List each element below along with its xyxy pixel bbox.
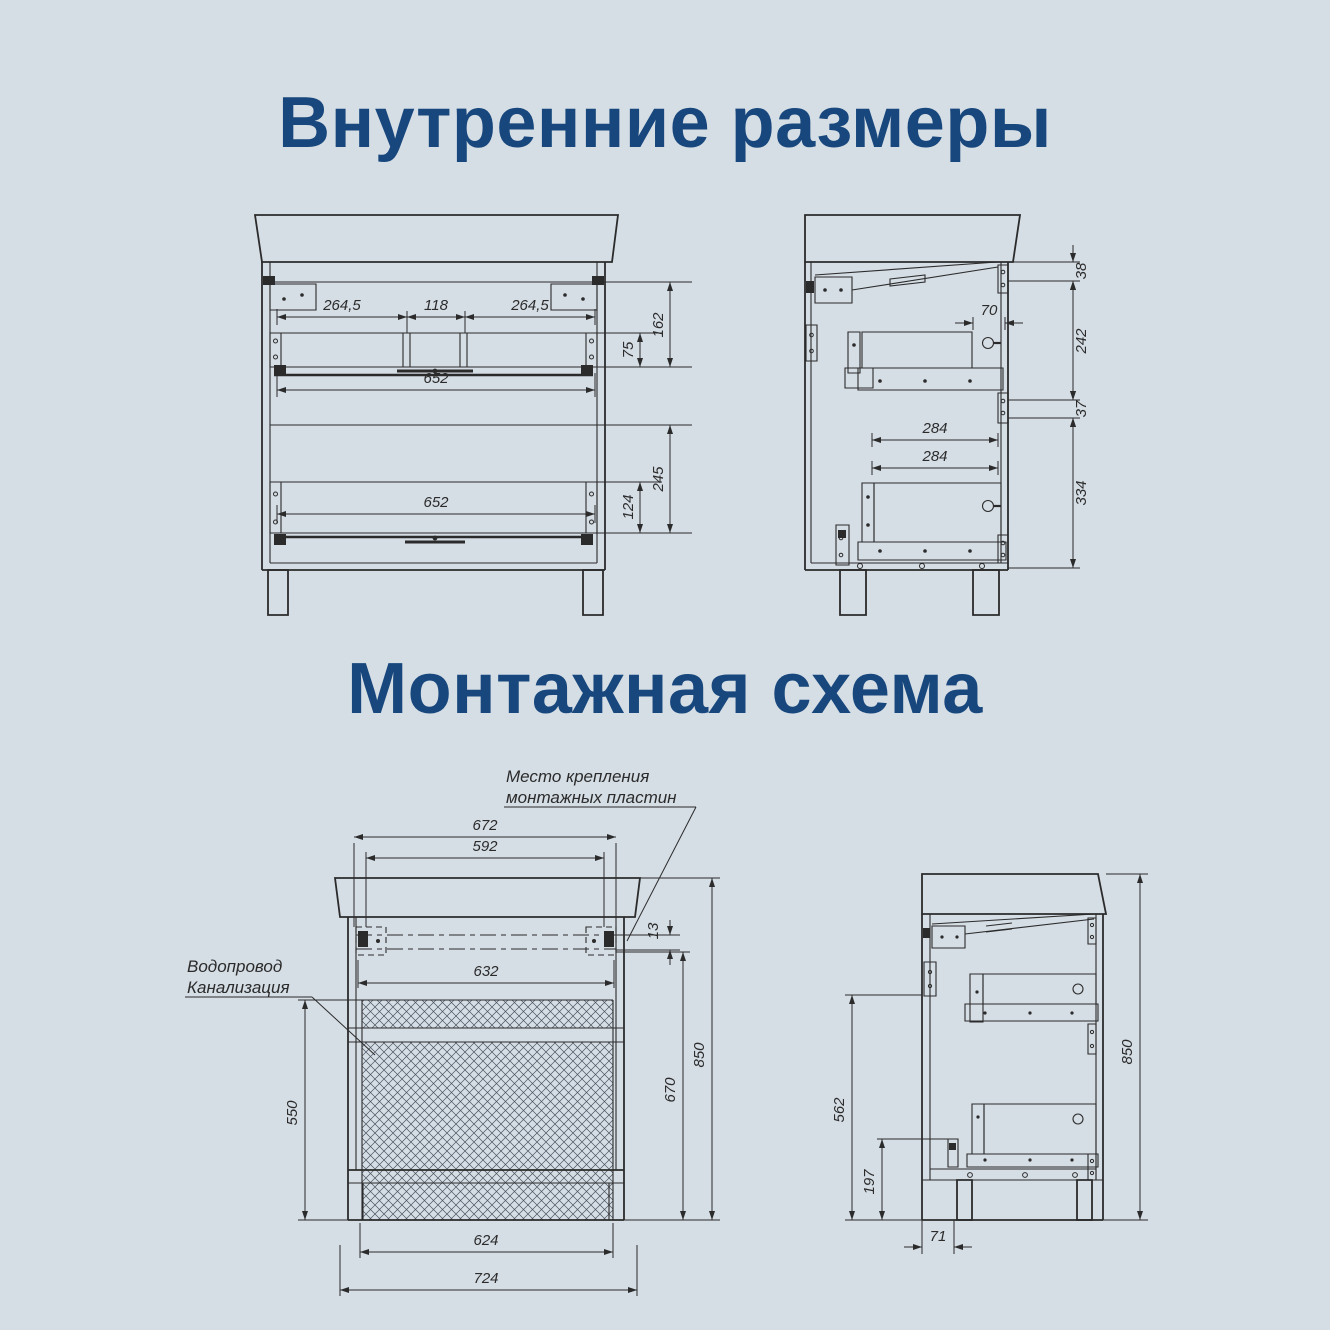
dim-front-top-section-height: 162 xyxy=(650,312,667,338)
dim-side-bottom-drawer-depth: 284 xyxy=(921,448,947,465)
dim-mount-side-back-offset: 71 xyxy=(930,1228,947,1245)
dim-mount-side-service-zone: 562 xyxy=(831,1097,848,1123)
dimension-lines xyxy=(872,245,1080,568)
note-plumbing-line2: Канализация xyxy=(187,978,290,997)
fittings-and-screws xyxy=(806,281,972,553)
internal-front-view-drawing: 264,5 118 264,5 652 652 162 75 245 124 xyxy=(230,205,700,640)
dim-front-top-width: 652 xyxy=(423,370,449,387)
wall-hatch-area xyxy=(362,1000,613,1220)
dim-front-bottom-width: 652 xyxy=(423,494,449,511)
mounting-front-view-drawing: Место крепления монтажных пластин Водопр… xyxy=(150,755,750,1300)
dim-mount-overall-height: 850 xyxy=(691,1042,708,1068)
dim-front-left-offset: 264,5 xyxy=(322,297,361,314)
cabinet-inner-structure xyxy=(922,914,1103,1180)
section-title-internal-dimensions: Внутренние размеры xyxy=(0,86,1330,162)
section-title-mounting-scheme: Монтажная схема xyxy=(0,652,1330,728)
dim-mount-plate-drop: 13 xyxy=(645,922,662,939)
dim-mount-plate-inner-span: 592 xyxy=(472,838,498,855)
dim-side-rail-offset: 70 xyxy=(981,302,998,319)
dimension-labels: 70 284 284 38 242 37 334 xyxy=(921,262,1090,506)
cabinet-outline xyxy=(805,215,1020,615)
dim-front-bottom-section-height: 245 xyxy=(650,466,667,493)
dim-front-right-offset: 264,5 xyxy=(510,297,549,314)
drawing-sheet: Внутренние размеры Монтажная схема xyxy=(0,0,1330,1330)
dim-front-center-gap: 118 xyxy=(424,297,449,314)
cabinet-outline xyxy=(255,215,618,615)
note-plate-line1: Место крепления xyxy=(506,767,649,786)
dim-mount-side-base-zone: 197 xyxy=(861,1169,878,1195)
dimension-labels: 264,5 118 264,5 652 652 162 75 245 124 xyxy=(322,297,667,520)
dim-side-top-drawer-depth: 284 xyxy=(921,420,947,437)
note-plumbing-line1: Водопровод xyxy=(187,957,282,976)
dim-front-bottom-drawer-height: 124 xyxy=(620,494,637,519)
mounting-side-view-drawing: 562 197 850 71 xyxy=(820,862,1170,1302)
internal-side-view-drawing: 70 284 284 38 242 37 334 xyxy=(795,205,1145,640)
fittings-and-screws xyxy=(923,928,1074,1162)
dim-front-top-drawer-height: 75 xyxy=(620,341,637,358)
dim-mount-rail-height: 670 xyxy=(662,1077,679,1103)
dim-mount-rail-span: 632 xyxy=(473,963,499,980)
dim-side-bottom-section-depth: 334 xyxy=(1073,480,1090,505)
dim-mount-plate-outer-span: 672 xyxy=(472,817,498,834)
dim-mount-service-zone-height: 550 xyxy=(284,1100,301,1126)
dim-side-mid-gap: 37 xyxy=(1073,400,1090,417)
cabinet-inner-structure xyxy=(806,262,1008,565)
note-plate-line2: монтажных пластин xyxy=(506,788,677,807)
bracket-holes xyxy=(810,270,1005,568)
mounting-plates xyxy=(358,931,614,947)
dim-side-top-section-depth: 242 xyxy=(1073,328,1090,355)
dim-mount-side-overall-height: 850 xyxy=(1119,1039,1136,1065)
dim-mount-base-width: 624 xyxy=(473,1232,498,1249)
dim-mount-overall-width: 724 xyxy=(473,1270,498,1287)
dim-side-top-gap: 38 xyxy=(1073,262,1090,279)
